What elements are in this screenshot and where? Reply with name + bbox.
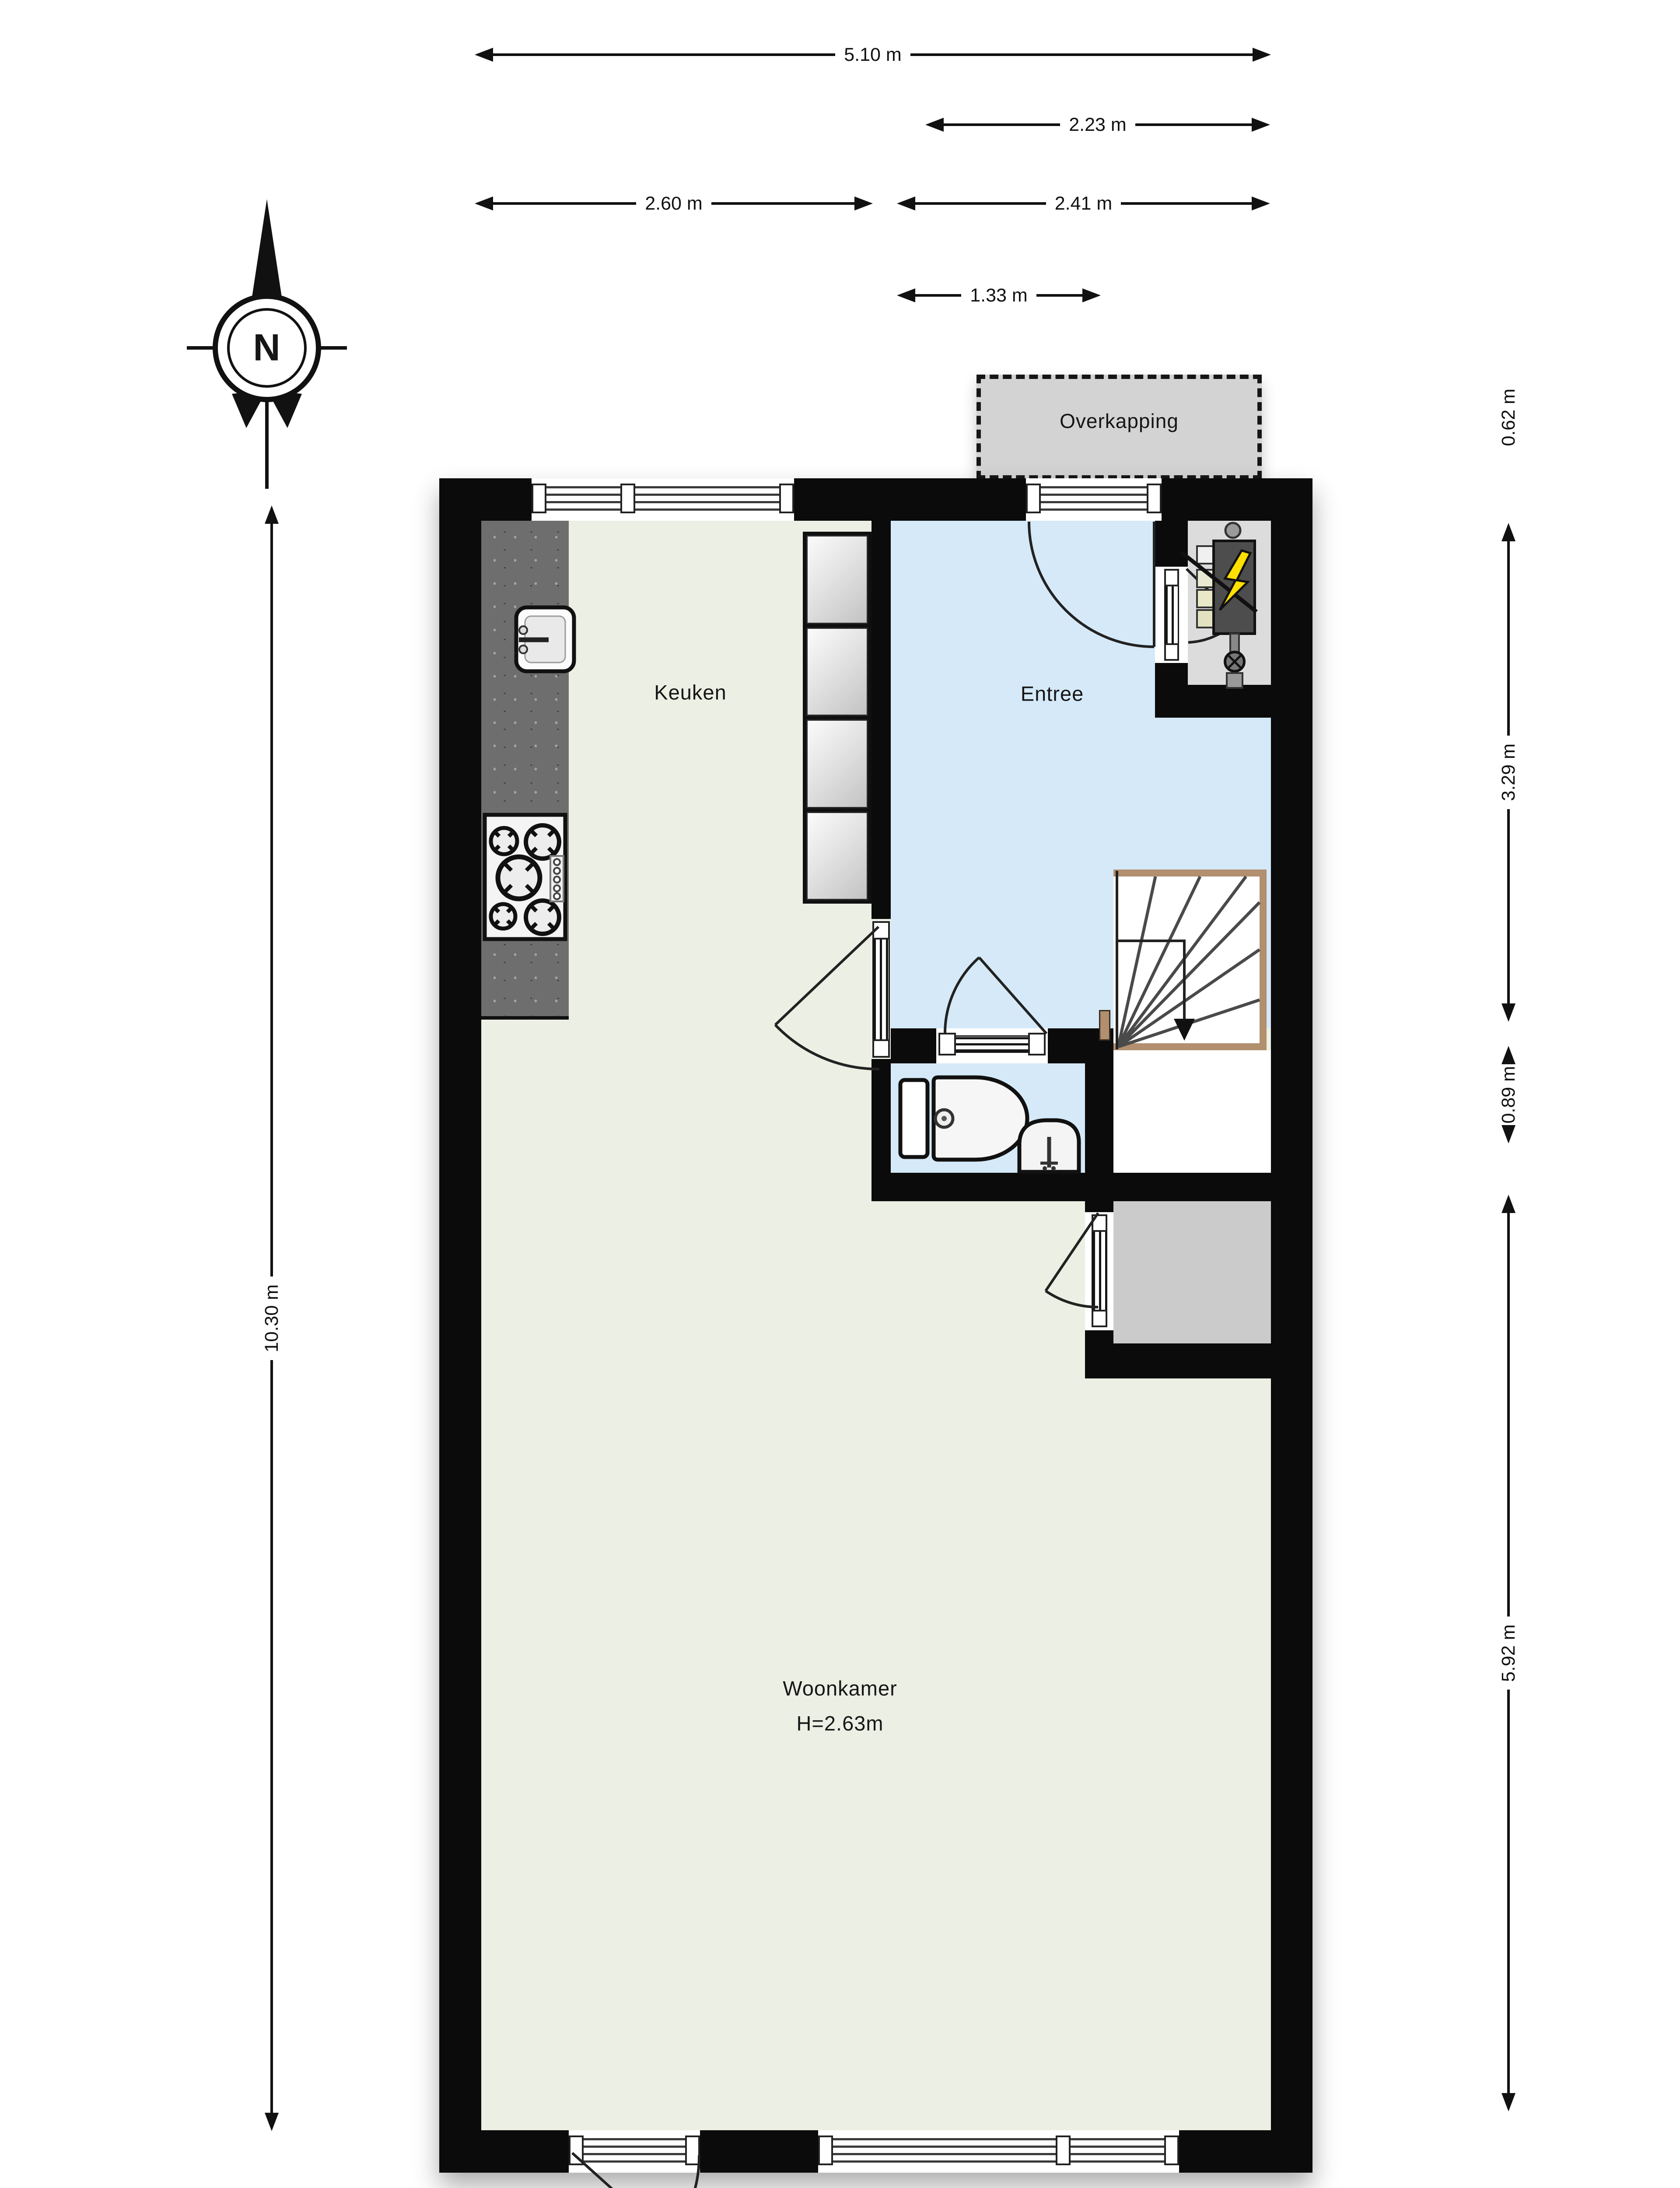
dim-line (493, 202, 636, 205)
door-post (1164, 643, 1179, 661)
keuken-door-leaf (872, 921, 890, 1058)
dimension-width-total: 5.10 m (475, 35, 1271, 74)
dim-label: 0.62 m (1498, 381, 1519, 454)
door-post (569, 2135, 584, 2165)
dimension-door-width: 1.33 m (897, 276, 1101, 315)
door-post (685, 2135, 700, 2165)
arrow-left-icon (475, 48, 493, 62)
dim-line (1507, 541, 1510, 736)
window-mullion (620, 484, 635, 513)
dim-line (1036, 294, 1082, 297)
arrow-up-icon (1501, 1195, 1515, 1213)
kitchen-counter (481, 521, 569, 1020)
wall-left (439, 478, 481, 2173)
arrow-left-icon (925, 118, 944, 132)
dim-line (1135, 123, 1252, 126)
dim-line (270, 1360, 273, 2113)
arrow-left-icon (897, 196, 915, 210)
dim-line (915, 294, 961, 297)
arrow-up-icon (1501, 1046, 1515, 1064)
overkapping-label: Overkapping (1060, 409, 1179, 433)
arrow-down-icon (265, 2113, 279, 2131)
cabinet (806, 628, 868, 716)
woonkamer-height-label: H=2.63m (796, 1711, 883, 1736)
staircase (1113, 870, 1267, 1050)
dim-line (1121, 202, 1252, 205)
window-mullion (1056, 2135, 1071, 2165)
arrow-right-icon (1252, 196, 1270, 210)
wall-closet-bottom (1085, 1343, 1271, 1378)
arrow-left-icon (475, 196, 493, 210)
dimension-woonkamer-depth: 5.92 m (1487, 1195, 1529, 2111)
dim-label: 2.41 m (1046, 193, 1121, 214)
dim-label: 3.29 m (1498, 736, 1519, 809)
dim-line (910, 53, 1253, 56)
cabinet (806, 812, 868, 901)
keuken-label: Keuken (654, 680, 726, 705)
door-post (1028, 1033, 1046, 1055)
window-post (779, 484, 794, 513)
dim-label: 2.60 m (636, 193, 711, 214)
dim-line (270, 524, 273, 1276)
arrow-down-icon (1501, 1125, 1515, 1143)
woonkamer-window (820, 2138, 1177, 2163)
dim-label: 2.23 m (1060, 114, 1135, 136)
window-post (532, 484, 546, 513)
wall-toilet-left (871, 1059, 891, 1173)
door-post (872, 921, 890, 940)
dim-line (1507, 809, 1510, 1003)
arrow-right-icon (1082, 288, 1101, 302)
dimension-overkapping-depth: 0.62 m (1487, 381, 1529, 479)
dim-label: 5.92 m (1498, 1616, 1519, 1690)
arrow-right-icon (854, 196, 873, 210)
dimension-height-total: 10.30 m (251, 505, 293, 2131)
dim-line (915, 202, 1046, 205)
dim-label: 1.33 m (961, 285, 1036, 306)
dim-line (493, 53, 835, 56)
arrow-up-icon (1501, 523, 1515, 541)
window-post (1164, 2135, 1179, 2165)
floor-toilet (891, 1063, 1085, 1173)
dim-label: 0.89 m (1498, 1064, 1519, 1125)
cabinet (806, 535, 868, 624)
dim-label: 10.30 m (261, 1276, 283, 1360)
dimension-toilet-depth: 0.89 m (1487, 1046, 1529, 1182)
wall-meterkast-bottom (1155, 685, 1271, 718)
wall-right (1271, 478, 1312, 2173)
compass-north-letter: N (253, 326, 280, 370)
door-post (1026, 484, 1041, 513)
wall-toilet-bottom (871, 1173, 1271, 1201)
door-post (1147, 484, 1162, 513)
dimension-entree-width: 2.23 m (925, 105, 1270, 144)
floor-under-stairs (1113, 1050, 1271, 1173)
stair-newel-post (1099, 1010, 1110, 1041)
door-post (938, 1033, 956, 1055)
floorplan-page: 5.10 m 2.23 m 2.60 m 2.41 m 1.33 m Overk… (0, 0, 1680, 2188)
window-post (818, 2135, 833, 2165)
arrow-down-icon (1501, 1003, 1515, 1022)
dim-label: 5.10 m (835, 44, 910, 66)
front-door-threshold (1028, 486, 1159, 511)
floor-closet (1113, 1201, 1271, 1343)
dim-line (1507, 1690, 1510, 2093)
cabinet (806, 719, 868, 808)
arrow-down-icon (1501, 2093, 1515, 2111)
woonkamer-label: Woonkamer (783, 1676, 897, 1701)
keuken-window (534, 486, 792, 511)
dim-line (711, 202, 854, 205)
wall-keuken-entree (871, 521, 891, 919)
dimension-keuken-width: 2.60 m (475, 184, 873, 223)
dimension-entree-depth: 3.29 m (1487, 523, 1529, 1022)
door-post (1164, 569, 1179, 586)
arrow-up-icon (265, 505, 279, 524)
dim-line (1507, 1213, 1510, 1616)
door-post (1092, 1214, 1107, 1232)
dim-line (944, 123, 1060, 126)
dimension-entree-inner-width: 2.41 m (897, 184, 1270, 223)
arrow-right-icon (1253, 48, 1271, 62)
cabinet-column (803, 532, 871, 904)
arrow-left-icon (897, 288, 915, 302)
door-post (1092, 1310, 1107, 1327)
door-post (872, 1039, 890, 1058)
floor-meterkast (1188, 521, 1271, 685)
garden-door-threshold (571, 2138, 698, 2163)
arrow-right-icon (1252, 118, 1270, 132)
entree-label: Entree (1021, 682, 1084, 706)
